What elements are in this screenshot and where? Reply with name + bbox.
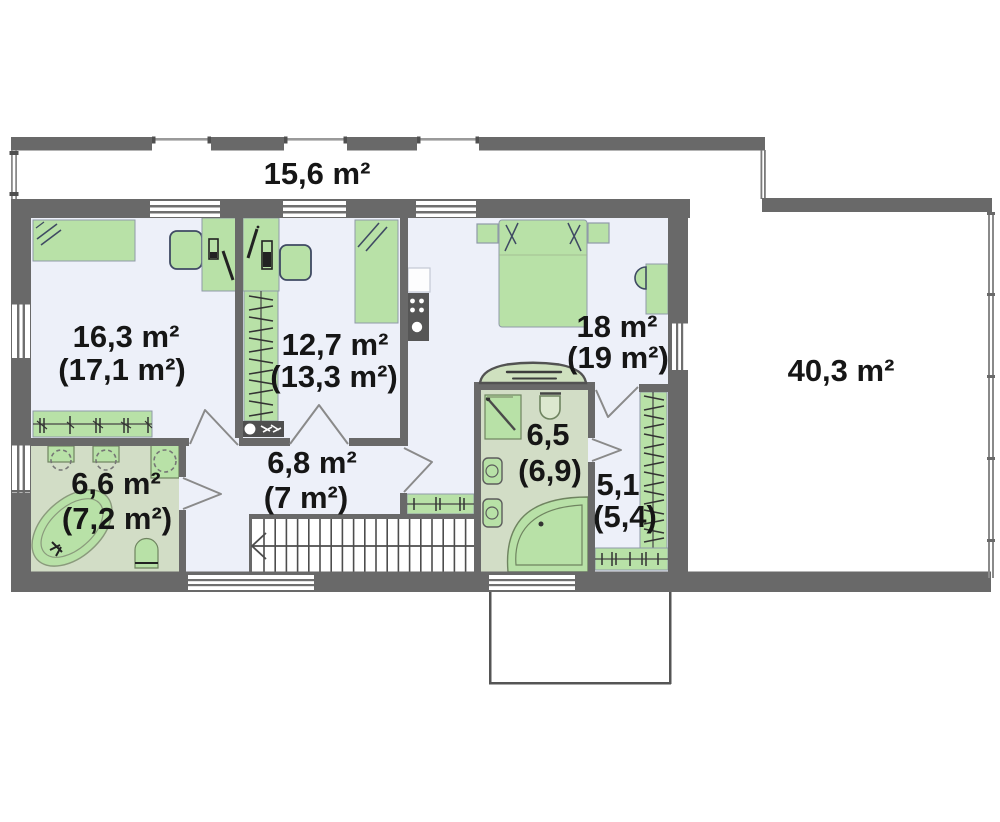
- svg-text:(17,1 m²): (17,1 m²): [58, 352, 185, 387]
- svg-text:(6,9): (6,9): [518, 453, 582, 488]
- svg-text:40,3 m²: 40,3 m²: [788, 353, 895, 388]
- svg-text:(5,4): (5,4): [593, 499, 657, 534]
- svg-text:(7,2 m²): (7,2 m²): [62, 501, 172, 536]
- svg-text:6,5: 6,5: [526, 417, 569, 452]
- svg-text:6,6 m²: 6,6 m²: [71, 466, 161, 501]
- svg-text:16,3 m²: 16,3 m²: [73, 319, 180, 354]
- svg-text:15,6 m²: 15,6 m²: [264, 156, 371, 191]
- svg-text:6,8 m²: 6,8 m²: [267, 445, 357, 480]
- svg-text:5,1: 5,1: [596, 467, 639, 502]
- svg-text:12,7 m²: 12,7 m²: [282, 327, 389, 362]
- svg-text:(19 m²): (19 m²): [567, 340, 669, 375]
- svg-text:(7 m²): (7 m²): [264, 480, 348, 515]
- svg-text:18 m²: 18 m²: [577, 309, 658, 344]
- svg-text:(13,3 m²): (13,3 m²): [270, 359, 397, 394]
